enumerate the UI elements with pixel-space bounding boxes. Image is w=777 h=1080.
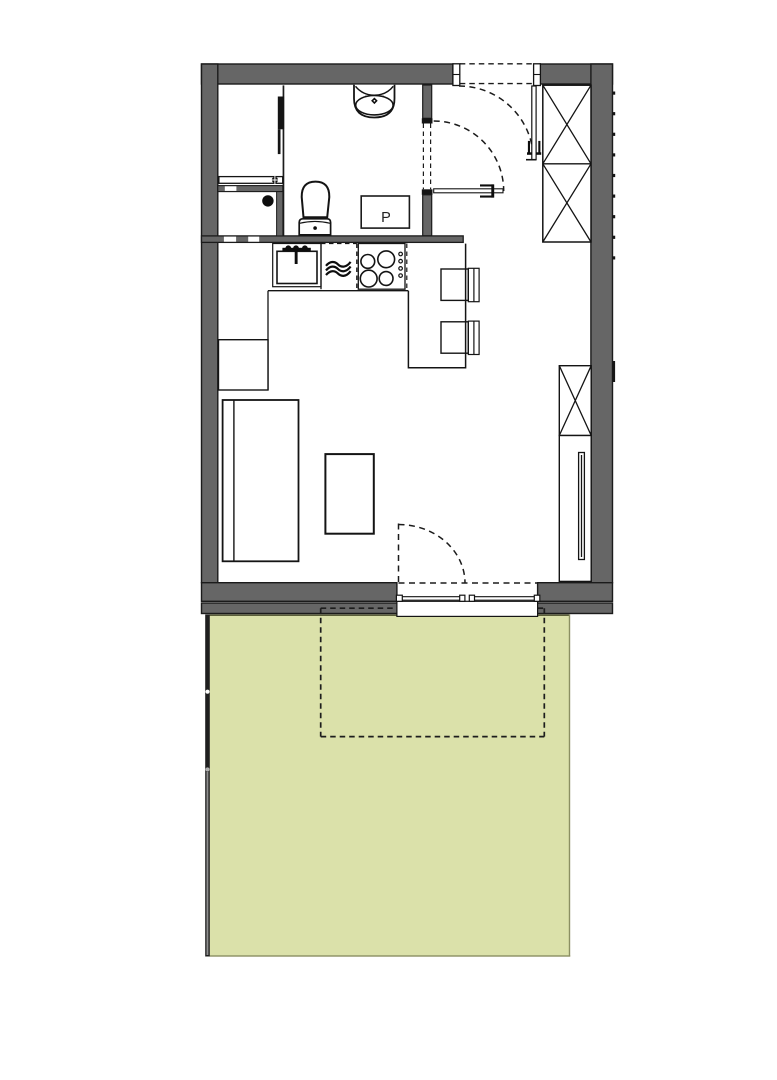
svg-text:P: P (381, 210, 391, 226)
